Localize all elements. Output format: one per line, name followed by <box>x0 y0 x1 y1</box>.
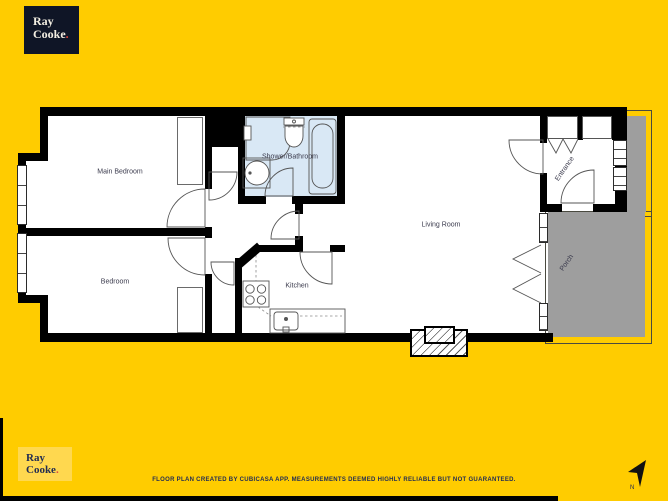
logo-line1: Ray <box>26 452 72 464</box>
window <box>539 303 548 331</box>
logo-line2: Cooke. <box>33 28 79 41</box>
wall <box>40 107 627 116</box>
wall <box>235 258 242 335</box>
room-label-bedroom: Bedroom <box>101 279 129 286</box>
north-label: N <box>630 485 634 491</box>
front-door-recess <box>547 116 578 139</box>
wall <box>612 116 615 140</box>
wall <box>205 274 212 335</box>
porch-area <box>548 212 645 337</box>
wall <box>205 227 212 238</box>
window <box>17 233 27 293</box>
room-label-living-room: Living Room <box>422 222 461 229</box>
letterbox-bar-bottom <box>0 496 558 501</box>
window <box>613 140 627 166</box>
ray-cooke-logo-bottom: Ray Cooke. <box>18 447 72 481</box>
bedroom-closet <box>177 287 203 333</box>
wall <box>22 228 212 236</box>
room-label-kitchen: Kitchen <box>285 283 308 290</box>
wall <box>593 204 627 212</box>
wall <box>238 145 245 201</box>
window <box>17 165 27 225</box>
wall-block <box>205 110 245 147</box>
main-bedroom-closet <box>177 117 203 185</box>
logo-period: . <box>66 27 69 41</box>
wall <box>540 113 547 143</box>
room-label-main-bedroom: Main Bedroom <box>97 169 143 176</box>
room-label-shower-bathroom: Shower/Bathroom <box>262 154 318 161</box>
logo-line2: Cooke. <box>26 464 72 476</box>
chimney-inner <box>424 326 455 344</box>
wall <box>540 204 562 212</box>
ray-cooke-logo-top: Ray Cooke. <box>24 6 79 54</box>
wall <box>330 245 345 252</box>
letterbox-bar-left <box>0 418 3 501</box>
logo-period: . <box>56 464 59 476</box>
window <box>539 213 548 243</box>
wall <box>337 113 345 204</box>
entrance-window-recess <box>582 116 612 139</box>
wall <box>295 204 303 214</box>
wall <box>40 333 553 342</box>
window <box>613 167 627 191</box>
disclaimer-text: FLOOR PLAN CREATED BY CUBICASA APP. MEAS… <box>0 477 668 483</box>
wall <box>238 196 266 204</box>
wall <box>256 245 302 252</box>
floor-plan-page: Main Bedroom Bedroom Shower/Bathroom Kit… <box>0 0 668 501</box>
